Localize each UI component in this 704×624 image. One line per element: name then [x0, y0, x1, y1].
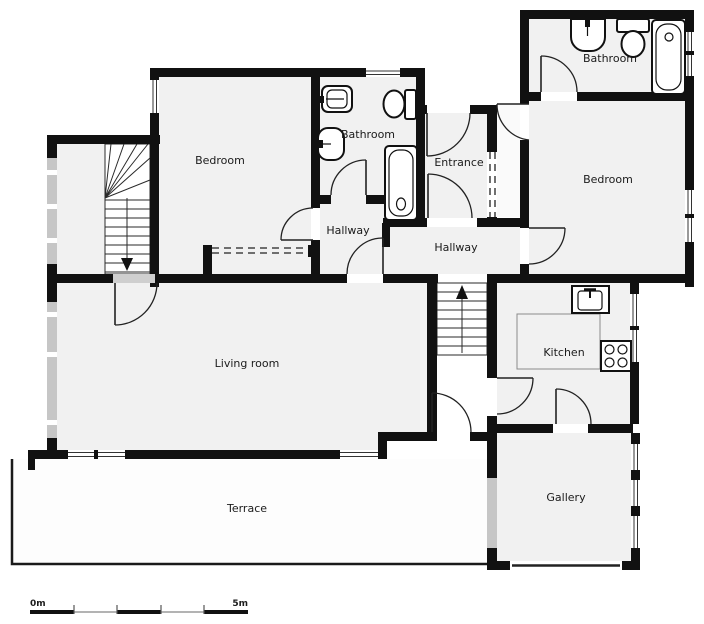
kitchen-sink-icon	[572, 286, 609, 313]
floor-plan-svg: Bedroom Bathroom Entrance Bathroom Bedro…	[0, 0, 704, 624]
scale-bar: 0m 5m	[30, 599, 248, 614]
window-icon	[366, 68, 400, 77]
room-label-bedroom-right: Bedroom	[583, 173, 633, 186]
window-icon	[685, 190, 694, 242]
window-icon	[47, 302, 57, 438]
window-icon	[631, 444, 640, 548]
room-label-bathroom-middle: Bathroom	[341, 128, 395, 141]
room-label-hallway-small: Hallway	[326, 224, 370, 237]
scale-end-label: 5m	[232, 599, 248, 609]
sink-icon	[318, 86, 352, 112]
bedroom-right-room	[529, 101, 685, 274]
stove-icon	[601, 341, 631, 371]
window-icon	[685, 32, 694, 76]
sliding-door-dashed	[487, 152, 497, 217]
room-label-terrace: Terrace	[226, 502, 267, 515]
floor-plan: Bedroom Bathroom Entrance Bathroom Bedro…	[0, 0, 704, 624]
window-icon	[47, 158, 57, 264]
window-icon	[150, 80, 159, 113]
toilet-icon	[384, 90, 417, 119]
bathtub-icon	[385, 146, 417, 220]
room-label-hallway-center: Hallway	[434, 241, 478, 254]
room-label-gallery: Gallery	[546, 491, 586, 504]
room-label-kitchen: Kitchen	[543, 346, 584, 359]
room-label-bedroom-top-left: Bedroom	[195, 154, 245, 167]
room-label-entrance: Entrance	[434, 156, 484, 169]
window-icon	[68, 450, 125, 459]
window-icon	[340, 450, 378, 459]
scale-start-label: 0m	[30, 599, 46, 609]
doorway-threshold	[113, 274, 155, 283]
window-icon	[510, 561, 622, 570]
room-label-bathroom-top-right: Bathroom	[583, 52, 637, 65]
bedroom-top-left-room	[159, 77, 311, 274]
sink-icon	[571, 19, 605, 51]
window-icon	[487, 478, 497, 548]
bathtub-icon	[652, 20, 685, 94]
room-label-living-room: Living room	[215, 357, 280, 370]
